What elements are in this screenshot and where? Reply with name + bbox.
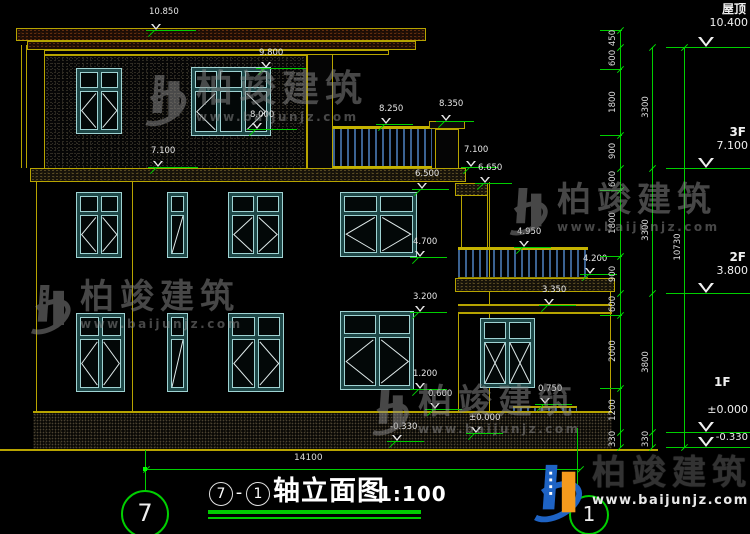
level-line	[412, 189, 449, 190]
level-line	[436, 121, 474, 122]
rain-pipe	[21, 45, 27, 168]
window-column	[102, 317, 121, 388]
window-column	[379, 315, 411, 386]
dim-label: 1800	[608, 80, 618, 124]
floor-value: 10.400	[666, 17, 750, 30]
floor-level-3f: 3F 7.100	[666, 126, 750, 169]
dim-tick	[577, 466, 584, 473]
watermark-text: 柏竣建筑 www.baijunjz.com	[557, 183, 720, 234]
window-pane	[171, 317, 184, 336]
window-3f-1	[76, 68, 122, 134]
dim-label: 3300	[641, 85, 651, 129]
casement-symbol	[380, 338, 410, 385]
dim-label: 2000	[608, 329, 618, 373]
casement-symbol	[81, 92, 97, 129]
wall-joint-line	[132, 182, 133, 412]
window-pane	[257, 215, 279, 254]
balcony-pillar-cap	[429, 121, 465, 129]
window-column	[344, 315, 376, 386]
casement-symbol	[485, 343, 505, 383]
level-line	[247, 129, 297, 130]
level-line	[666, 293, 750, 294]
bottom-dim-label: 14100	[294, 454, 323, 463]
floor-slab-7100	[30, 168, 466, 182]
dim-line-vertical	[652, 47, 653, 448]
bottom-dim-line	[146, 469, 580, 470]
elevation-value: 4.700	[410, 238, 447, 247]
dim-label: 600	[608, 282, 618, 326]
elevation-value: 6.500	[412, 170, 449, 179]
elevation-value: 6.650	[475, 164, 512, 173]
window-column	[195, 71, 217, 132]
wall-column-3f	[307, 55, 333, 168]
axis-number: 1	[254, 486, 263, 502]
floor-label: 3F	[666, 126, 750, 140]
elevation-marker: 8.000	[247, 111, 297, 130]
elevation-marker: -0.330	[387, 423, 424, 442]
watermark-logo-icon	[24, 280, 74, 340]
level-line	[425, 409, 462, 410]
window-pane	[101, 91, 119, 130]
balcony-railing-2f	[458, 247, 588, 278]
axis-bubble-7: 7	[121, 490, 169, 534]
wall-edge-left	[36, 182, 37, 412]
floor-label: 1F	[714, 375, 731, 389]
casement-symbol	[381, 216, 412, 252]
window-column	[80, 196, 98, 254]
window-pane	[379, 337, 411, 386]
level-line	[539, 305, 576, 306]
level-line	[666, 47, 750, 48]
elevation-value: 1.200	[410, 370, 447, 379]
elevation-value: 9.800	[256, 49, 306, 58]
elevation-marker: 3.200	[410, 293, 447, 313]
axis-stem-right	[577, 428, 578, 496]
floor-value: 3.800	[666, 265, 750, 278]
window-pane	[344, 196, 377, 212]
window-pane	[257, 196, 279, 212]
window-pane	[101, 215, 119, 254]
casement-symbol	[196, 92, 216, 131]
title-separator: -	[232, 482, 246, 503]
level-line	[475, 183, 512, 184]
window-2f-4	[340, 192, 417, 257]
axis-number: 1	[583, 502, 596, 526]
window-pane	[220, 71, 242, 88]
brand-name: 柏竣建筑	[592, 456, 750, 490]
brand-url: www.baijunjz.com	[592, 493, 750, 508]
window-column	[232, 196, 254, 254]
floor-value: ±0.000	[666, 404, 750, 417]
level-triangle-icon	[698, 437, 714, 447]
dim-label: 3300	[641, 208, 651, 252]
window-pane	[80, 339, 99, 388]
window-pane	[380, 215, 413, 253]
axis-bubble-1: 1	[569, 495, 609, 534]
casement-symbol	[510, 343, 530, 383]
window-pane	[171, 339, 184, 388]
watermark: 柏竣建筑 www.baijunjz.com	[24, 280, 243, 340]
window-pane	[220, 91, 242, 132]
casement-symbol	[81, 216, 97, 253]
window-pane	[484, 322, 506, 339]
casement-symbol	[172, 216, 183, 253]
porch-window	[480, 318, 535, 388]
drawing-title: 轴立面图	[273, 478, 385, 505]
level-line	[376, 124, 413, 125]
dim-line-vertical	[684, 47, 685, 448]
level-line	[535, 404, 572, 405]
elevation-value: 3.350	[539, 286, 576, 295]
dim-label: 600	[608, 36, 618, 80]
window-pane	[80, 317, 99, 336]
casement-symbol	[259, 340, 280, 387]
window-pane	[101, 196, 119, 212]
window-pane	[80, 72, 98, 88]
casement-symbol	[103, 340, 120, 387]
level-line	[410, 312, 447, 313]
window-2f-1	[76, 192, 122, 258]
window-pane	[509, 322, 531, 339]
level-triangle-icon	[698, 283, 714, 293]
window-column	[80, 72, 98, 130]
window-column	[509, 322, 531, 384]
window-pane	[102, 339, 121, 388]
elevation-marker: 0.600	[425, 390, 462, 410]
title-axis-circle-end: 1	[246, 482, 270, 506]
roof-slab-lower	[27, 41, 416, 50]
window-pane	[80, 91, 98, 130]
elevation-marker: 6.500	[412, 170, 449, 190]
floor-slab-4200	[455, 278, 615, 292]
casement-symbol	[102, 216, 118, 253]
level-line	[514, 247, 551, 248]
elevation-value: 0.600	[425, 390, 462, 399]
elevation-marker: 1.200	[410, 370, 447, 390]
annex-edge-line	[487, 196, 488, 247]
casement-symbol	[102, 92, 118, 129]
dim-tick	[412, 257, 419, 264]
title-underline-thick	[208, 510, 421, 514]
floor-value: 7.100	[666, 140, 750, 153]
dim-line-vertical	[620, 30, 621, 448]
window-pane	[80, 196, 98, 212]
elevation-marker: 0.750	[535, 385, 572, 405]
cad-elevation-drawing: 10.850 9.800 8.000 7.100 8.250 8.350 7.1…	[0, 0, 750, 534]
elevation-marker: ±0.000	[466, 414, 503, 434]
brand-logo: 柏竣建筑 www.baijunjz.com	[528, 456, 750, 528]
window-pane	[195, 91, 217, 132]
casement-symbol	[345, 216, 376, 252]
elevation-value: 10.850	[146, 8, 196, 17]
elevation-value: 7.100	[148, 147, 198, 156]
elevation-marker: 10.850	[146, 8, 196, 31]
elevation-value: ±0.000	[466, 414, 503, 423]
window-pane	[232, 196, 254, 212]
floor-level-1f-zero: ±0.000	[666, 404, 750, 433]
window-2f-3	[228, 192, 283, 258]
elevation-value: -0.330	[387, 423, 424, 432]
window-column	[101, 72, 119, 130]
porch-roof-beam	[458, 304, 612, 314]
title-axis-circle-start: 7	[209, 482, 233, 506]
floor-label: 屋顶	[666, 3, 750, 17]
window-pane	[195, 71, 217, 88]
elevation-value: 0.750	[535, 385, 572, 394]
window-column	[380, 196, 413, 253]
elevation-marker: 6.650	[475, 164, 512, 184]
level-line	[387, 441, 424, 442]
watermark-brand: 柏竣建筑	[80, 280, 243, 314]
elevation-marker: 3.350	[539, 286, 576, 306]
casement-symbol	[233, 216, 253, 253]
level-line	[666, 447, 750, 448]
window-1f-1	[76, 313, 125, 392]
window-pane	[232, 339, 255, 388]
window-pane	[232, 317, 255, 336]
window-column	[344, 196, 377, 253]
window-pane	[344, 337, 376, 386]
elevation-marker: 4.700	[410, 238, 447, 258]
window-1f-4	[340, 311, 414, 390]
watermark-brand: 柏竣建筑	[557, 183, 720, 217]
casement-symbol	[233, 340, 254, 387]
ground-line	[0, 449, 658, 451]
window-column	[484, 322, 506, 384]
dim-label: 600	[608, 157, 618, 201]
window-column	[232, 317, 255, 388]
dim-label: 1800	[608, 201, 618, 245]
elevation-value: 4.950	[514, 228, 551, 237]
elevation-marker: 4.950	[514, 228, 551, 248]
window-pane	[344, 315, 376, 334]
window-pane	[232, 215, 254, 254]
window-column	[101, 196, 119, 254]
axis-number: 7	[137, 499, 152, 527]
dim-tick	[412, 389, 419, 396]
window-pane	[379, 315, 411, 334]
window-column	[257, 196, 279, 254]
window-column	[171, 196, 184, 254]
brand-text: 柏竣建筑 www.baijunjz.com	[592, 456, 750, 508]
axis-number: 7	[217, 486, 226, 502]
elevation-value: 8.000	[247, 111, 297, 120]
annex-edge-line	[461, 196, 462, 247]
balcony-pillar	[435, 129, 459, 169]
window-1f-2	[167, 313, 188, 392]
roof-slab-upper	[16, 28, 426, 41]
level-line	[146, 30, 196, 31]
title-underline-thin	[208, 517, 421, 519]
level-line	[148, 167, 198, 168]
casement-symbol	[345, 338, 375, 385]
window-pane	[102, 317, 121, 336]
floor-level-1f-minus: -0.330	[666, 432, 750, 448]
dim-label: 3800	[641, 340, 651, 384]
elevation-value: 8.350	[436, 100, 474, 109]
elevation-value: 3.200	[410, 293, 447, 302]
window-pane	[258, 339, 281, 388]
window-pane	[484, 342, 506, 384]
level-triangle-icon	[698, 37, 714, 47]
dim-tick	[414, 189, 421, 196]
level-line	[410, 257, 447, 258]
window-2f-2	[167, 192, 188, 258]
elevation-value: 8.250	[376, 105, 413, 114]
elevation-marker: 7.100	[148, 147, 198, 168]
elevation-marker: 9.800	[256, 49, 306, 69]
dim-label: 330	[641, 417, 651, 461]
window-pane	[80, 215, 98, 254]
floor-level-roof: 屋顶 10.400	[666, 3, 750, 48]
level-line	[466, 433, 503, 434]
window-pane	[344, 215, 377, 253]
window-pane	[380, 196, 413, 212]
window-pane	[245, 71, 267, 88]
level-triangle-icon	[698, 158, 714, 168]
dim-label: 330	[608, 417, 618, 461]
casement-symbol	[258, 216, 278, 253]
ledge-6650	[455, 183, 488, 196]
balcony-railing-3f	[333, 126, 432, 168]
window-pane	[509, 342, 531, 384]
window-pane	[258, 317, 281, 336]
level-line	[666, 168, 750, 169]
watermark-url: www.baijunjz.com	[557, 220, 720, 234]
window-column	[220, 71, 242, 132]
window-column	[171, 317, 184, 388]
window-pane	[171, 196, 184, 212]
casement-symbol	[81, 340, 98, 387]
window-column	[80, 317, 99, 388]
window-pane	[101, 72, 119, 88]
elevation-marker: 8.250	[376, 105, 413, 125]
level-triangle-icon	[698, 422, 714, 432]
axis-junction-dot	[143, 467, 147, 471]
window-column	[258, 317, 281, 388]
plinth	[33, 411, 612, 449]
floor-level-2f: 2F 3.800	[666, 251, 750, 294]
window-1f-3	[228, 313, 284, 392]
elevation-value: 7.100	[461, 146, 498, 155]
level-line	[256, 68, 306, 69]
drawing-scale: 1:100	[378, 484, 447, 504]
floor-label: 2F	[666, 251, 750, 265]
window-pane	[171, 215, 184, 254]
casement-symbol	[172, 340, 183, 387]
elevation-marker: 8.350	[436, 100, 474, 122]
